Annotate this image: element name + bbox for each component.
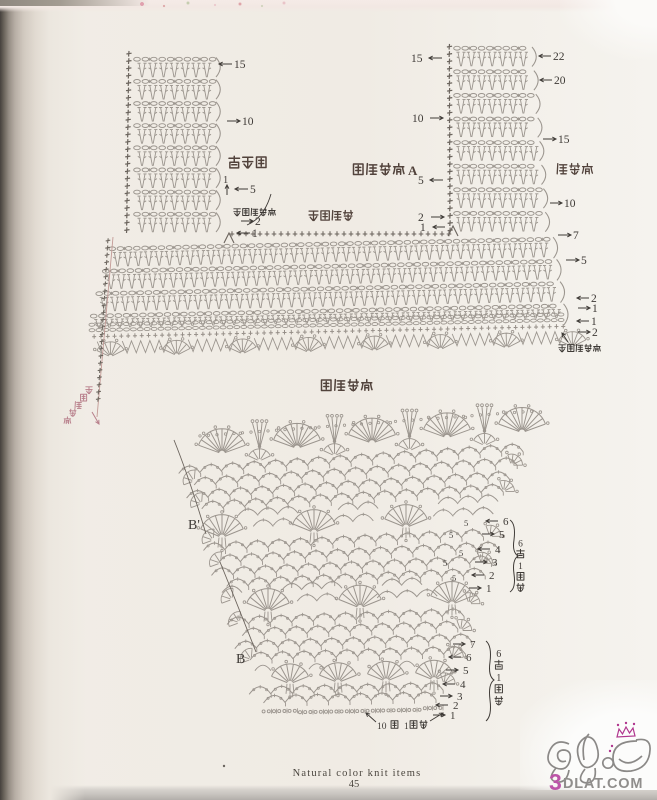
svg-text:DLAT.COM: DLAT.COM [563, 776, 643, 792]
svg-text:1: 1 [223, 175, 228, 186]
svg-text:6: 6 [518, 540, 523, 550]
svg-text:2: 2 [255, 216, 261, 228]
svg-text:5: 5 [449, 530, 453, 540]
svg-text:5: 5 [464, 518, 468, 528]
svg-text:6: 6 [496, 649, 501, 660]
svg-text:15: 15 [411, 53, 423, 65]
svg-text:7: 7 [470, 639, 476, 651]
svg-text:5: 5 [463, 665, 469, 677]
svg-text:5: 5 [452, 573, 456, 583]
svg-text:10: 10 [377, 722, 387, 732]
svg-text:1: 1 [486, 583, 492, 595]
svg-text:4: 4 [495, 544, 501, 556]
svg-text:3: 3 [549, 769, 562, 795]
svg-text:1: 1 [496, 673, 501, 684]
svg-text:15: 15 [234, 59, 246, 71]
svg-text:6: 6 [503, 516, 509, 528]
svg-text:B: B [236, 652, 245, 667]
svg-text:5: 5 [581, 255, 587, 267]
svg-text:10: 10 [412, 113, 424, 125]
svg-text:22: 22 [553, 51, 565, 63]
svg-text:2: 2 [592, 327, 598, 339]
svg-text:10: 10 [564, 198, 576, 210]
svg-text:1: 1 [518, 562, 523, 572]
svg-text:A: A [408, 163, 418, 178]
svg-text:45: 45 [349, 779, 360, 790]
svg-text:1: 1 [592, 303, 598, 315]
svg-text:10: 10 [242, 116, 254, 128]
svg-text:1: 1 [420, 222, 426, 234]
svg-text:B': B' [188, 518, 200, 533]
svg-text:5: 5 [459, 548, 463, 558]
svg-text:5: 5 [418, 175, 424, 187]
svg-text:3: 3 [492, 557, 498, 569]
svg-text:5: 5 [250, 184, 256, 196]
svg-text:1: 1 [404, 722, 409, 732]
svg-text:5: 5 [443, 558, 447, 568]
svg-text:1: 1 [450, 710, 456, 722]
svg-text:6: 6 [466, 652, 472, 664]
svg-text:20: 20 [554, 75, 566, 87]
svg-text:5: 5 [499, 529, 505, 541]
svg-text:Natural color knit items: Natural color knit items [293, 768, 422, 779]
svg-text:15: 15 [558, 134, 570, 146]
svg-text:4: 4 [460, 679, 466, 691]
svg-text:7: 7 [573, 230, 579, 242]
svg-text:2: 2 [489, 570, 495, 582]
svg-text:1: 1 [252, 228, 258, 240]
